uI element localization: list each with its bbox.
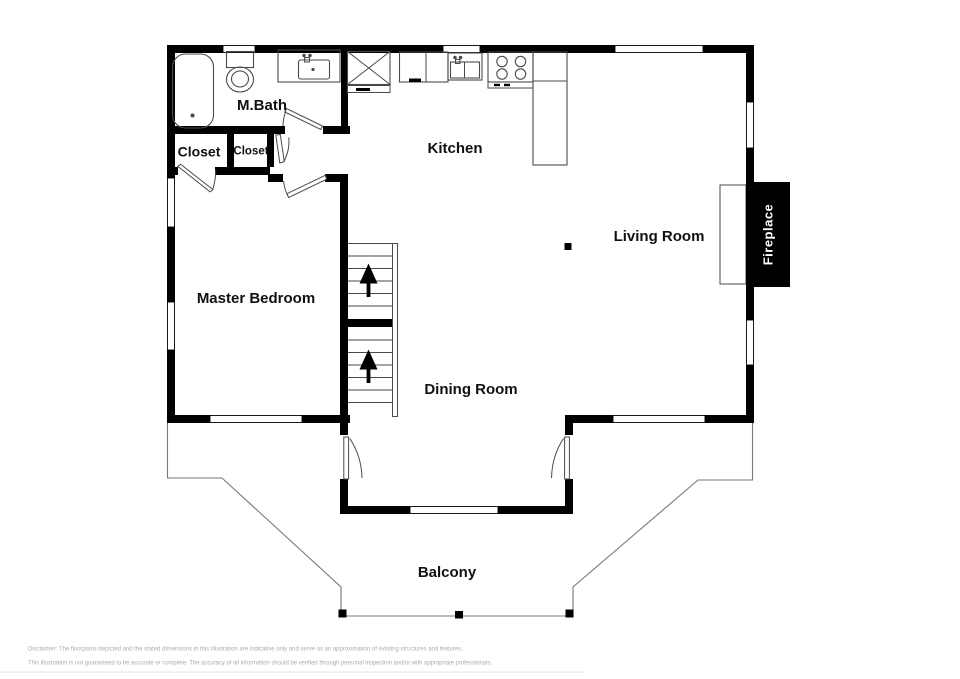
room-label-master-bedroom: Master Bedroom — [197, 290, 315, 307]
window — [168, 302, 175, 350]
railing-post — [339, 610, 347, 618]
window — [613, 416, 705, 423]
railing-post — [566, 610, 574, 618]
railing-post — [455, 611, 463, 619]
door-swing-mbath — [283, 109, 323, 130]
structural-post — [565, 243, 572, 250]
kitchen-counter — [400, 52, 449, 82]
bathtub-icon — [173, 54, 214, 128]
room-label-mbath: M.Bath — [237, 97, 287, 114]
bathroom-fixtures — [173, 50, 341, 128]
window — [210, 416, 302, 423]
room-label-closet-large: Closet — [178, 144, 221, 160]
door-swing-master-bedroom — [284, 175, 327, 197]
room-label-kitchen: Kitchen — [427, 140, 482, 157]
disclaimer-line-2: This illustration is not guaranteed to b… — [28, 660, 492, 667]
island-counter — [533, 52, 567, 165]
balcony-railing — [168, 423, 753, 619]
fireplace: Fireplace — [720, 182, 790, 287]
windows — [168, 46, 754, 514]
toilet-icon — [227, 52, 254, 93]
room-label-living-room: Living Room — [614, 228, 705, 245]
door-swing-closet-large — [178, 164, 216, 192]
exterior-walls — [167, 45, 754, 514]
floorplan-drawing: Fireplace M.Bath Closet Closet Kitchen L… — [0, 0, 960, 679]
door-swing-balcony-right — [552, 437, 570, 479]
disclaimer: Disclaimer: The floorplans depicted and … — [0, 646, 585, 673]
door-swing-balcony-left — [344, 437, 362, 479]
fireplace-label: Fireplace — [761, 204, 776, 266]
window — [168, 178, 175, 227]
stove-icon — [488, 52, 533, 88]
door-swing-closet-small — [276, 135, 289, 163]
refrigerator-icon — [348, 52, 391, 93]
room-label-closet-small: Closet — [233, 146, 268, 158]
vanity-sink-icon — [278, 50, 340, 82]
fireplace-hearth — [720, 185, 746, 284]
window — [747, 102, 754, 148]
floorplan-page: Fireplace M.Bath Closet Closet Kitchen L… — [0, 0, 960, 679]
room-label-dining-room: Dining Room — [424, 381, 517, 398]
disclaimer-line-1: Disclaimer: The floorplans depicted and … — [28, 646, 463, 653]
bottom-divider — [0, 672, 585, 673]
room-label-balcony: Balcony — [418, 564, 477, 581]
stairs-icon — [348, 244, 398, 417]
window — [747, 320, 754, 365]
window — [410, 507, 498, 514]
window — [615, 46, 703, 53]
kitchen-sink-icon — [448, 53, 482, 80]
